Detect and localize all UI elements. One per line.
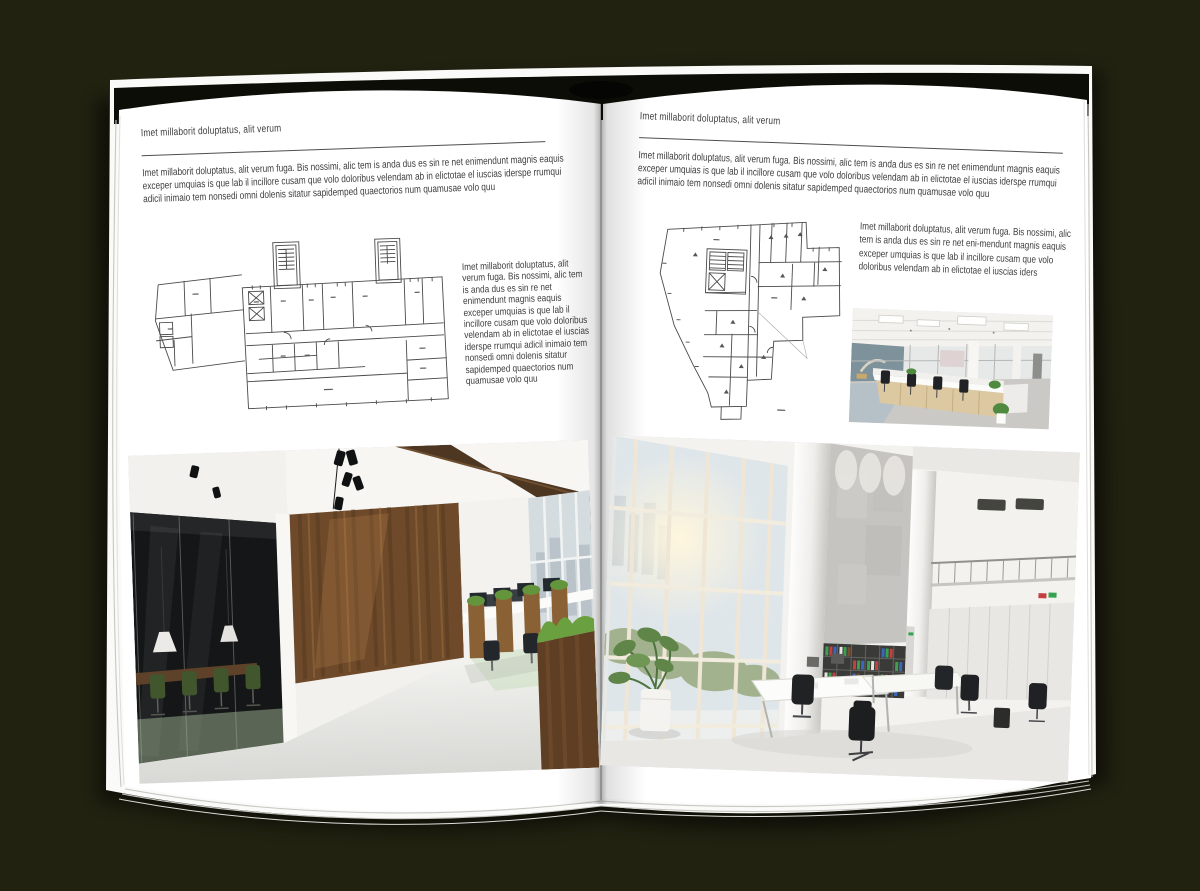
left-page-header: Imet millaborit doluptatus, alit verum	[141, 122, 282, 139]
right-page-header: Imet millaborit doluptatus, alit verum	[640, 110, 781, 127]
floor-plan-right	[647, 213, 854, 426]
left-page-intro: Imet millaborit doluptatus, alit verum f…	[142, 152, 579, 206]
photo-dark-wood-office	[128, 440, 599, 784]
right-page: Imet millaborit doluptatus, alit verum I…	[599, 84, 1095, 807]
left-page-side-text: Imet millaborit doluptatus, alit verum f…	[462, 258, 594, 388]
photo-open-plan-office	[849, 308, 1053, 429]
right-page-caption: Imet millaborit doluptatus, alit verum f…	[858, 220, 1076, 282]
brochure-mockup: Imet millaborit doluptatus, alit verum I…	[0, 0, 1200, 891]
left-header-rule	[142, 141, 546, 156]
photo-bright-atrium-office	[600, 435, 1080, 782]
left-page: Imet millaborit doluptatus, alit verum I…	[106, 90, 604, 808]
right-page-intro: Imet millaborit doluptatus, alit verum f…	[637, 149, 1074, 204]
floor-plan-left	[151, 235, 451, 417]
